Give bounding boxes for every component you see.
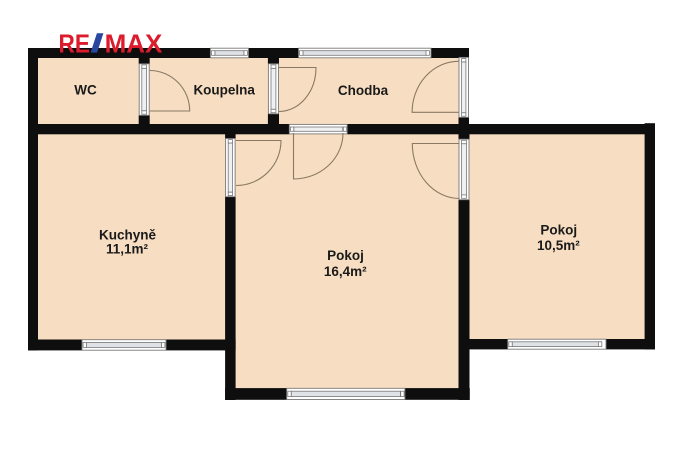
svg-text:10,5m²: 10,5m² <box>537 238 580 253</box>
svg-text:MAX: MAX <box>105 29 163 59</box>
svg-text:Chodba: Chodba <box>338 83 389 98</box>
svg-text:Koupelna: Koupelna <box>193 83 255 98</box>
svg-text:Kuchyně: Kuchyně <box>99 228 157 243</box>
svg-text:16,4m²: 16,4m² <box>324 264 367 279</box>
svg-text:RE: RE <box>59 30 90 59</box>
svg-text:Pokoj: Pokoj <box>540 222 577 237</box>
svg-text:WC: WC <box>74 83 97 98</box>
svg-text:11,1m²: 11,1m² <box>106 241 149 256</box>
svg-text:Pokoj: Pokoj <box>327 248 364 263</box>
